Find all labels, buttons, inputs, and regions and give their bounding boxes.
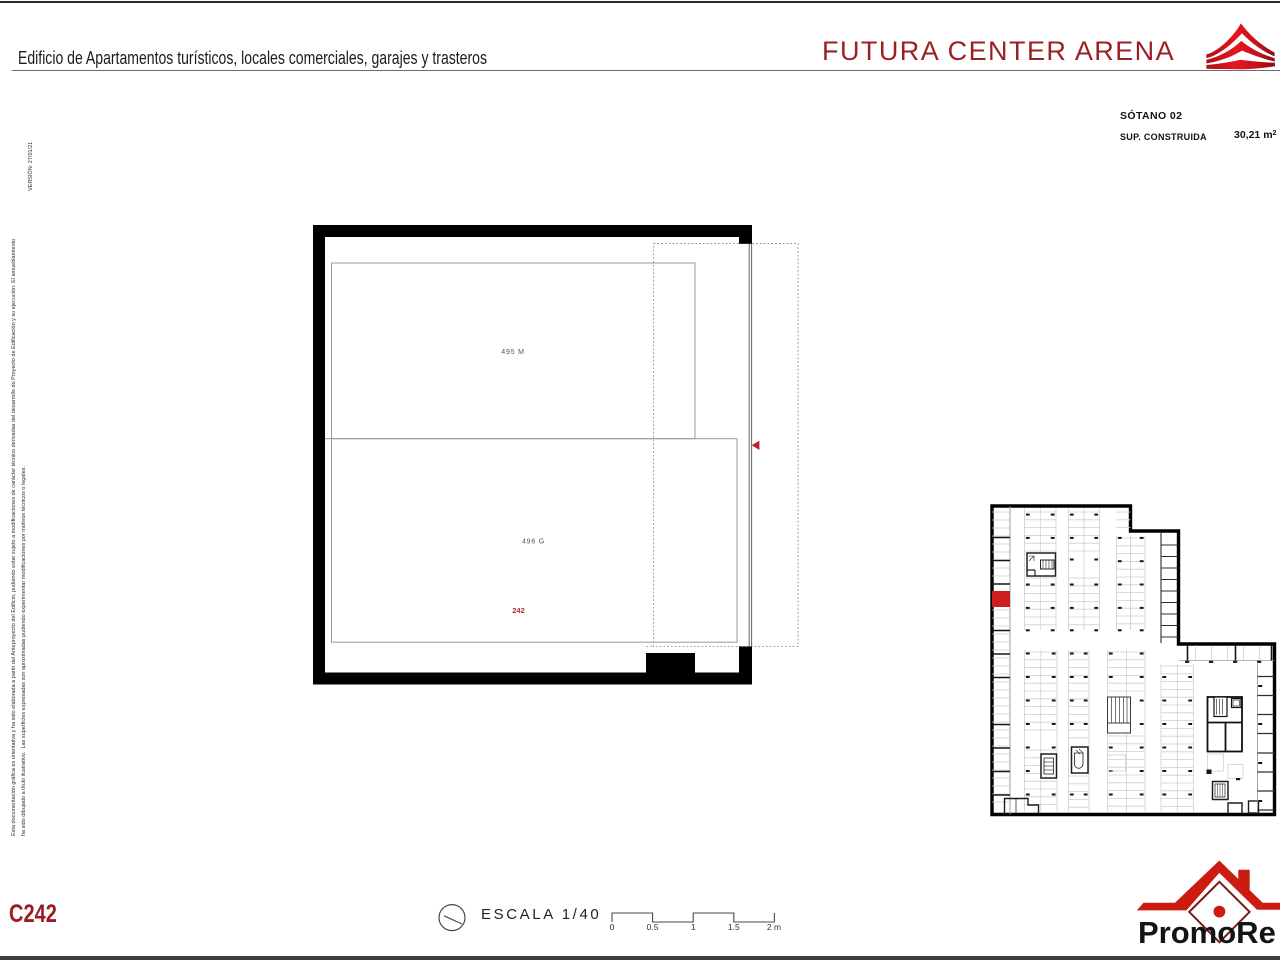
svg-text:1.5: 1.5 xyxy=(728,922,740,932)
svg-text:495 M: 495 M xyxy=(501,349,524,356)
svg-text:0: 0 xyxy=(610,922,615,932)
svg-text:0.5: 0.5 xyxy=(647,922,659,932)
svg-text:242: 242 xyxy=(512,606,525,615)
svg-text:1: 1 xyxy=(691,922,696,932)
svg-text:496 G: 496 G xyxy=(522,539,545,546)
svg-text:PromoRe: PromoRe xyxy=(1138,915,1276,950)
svg-text:2 m: 2 m xyxy=(767,922,781,932)
